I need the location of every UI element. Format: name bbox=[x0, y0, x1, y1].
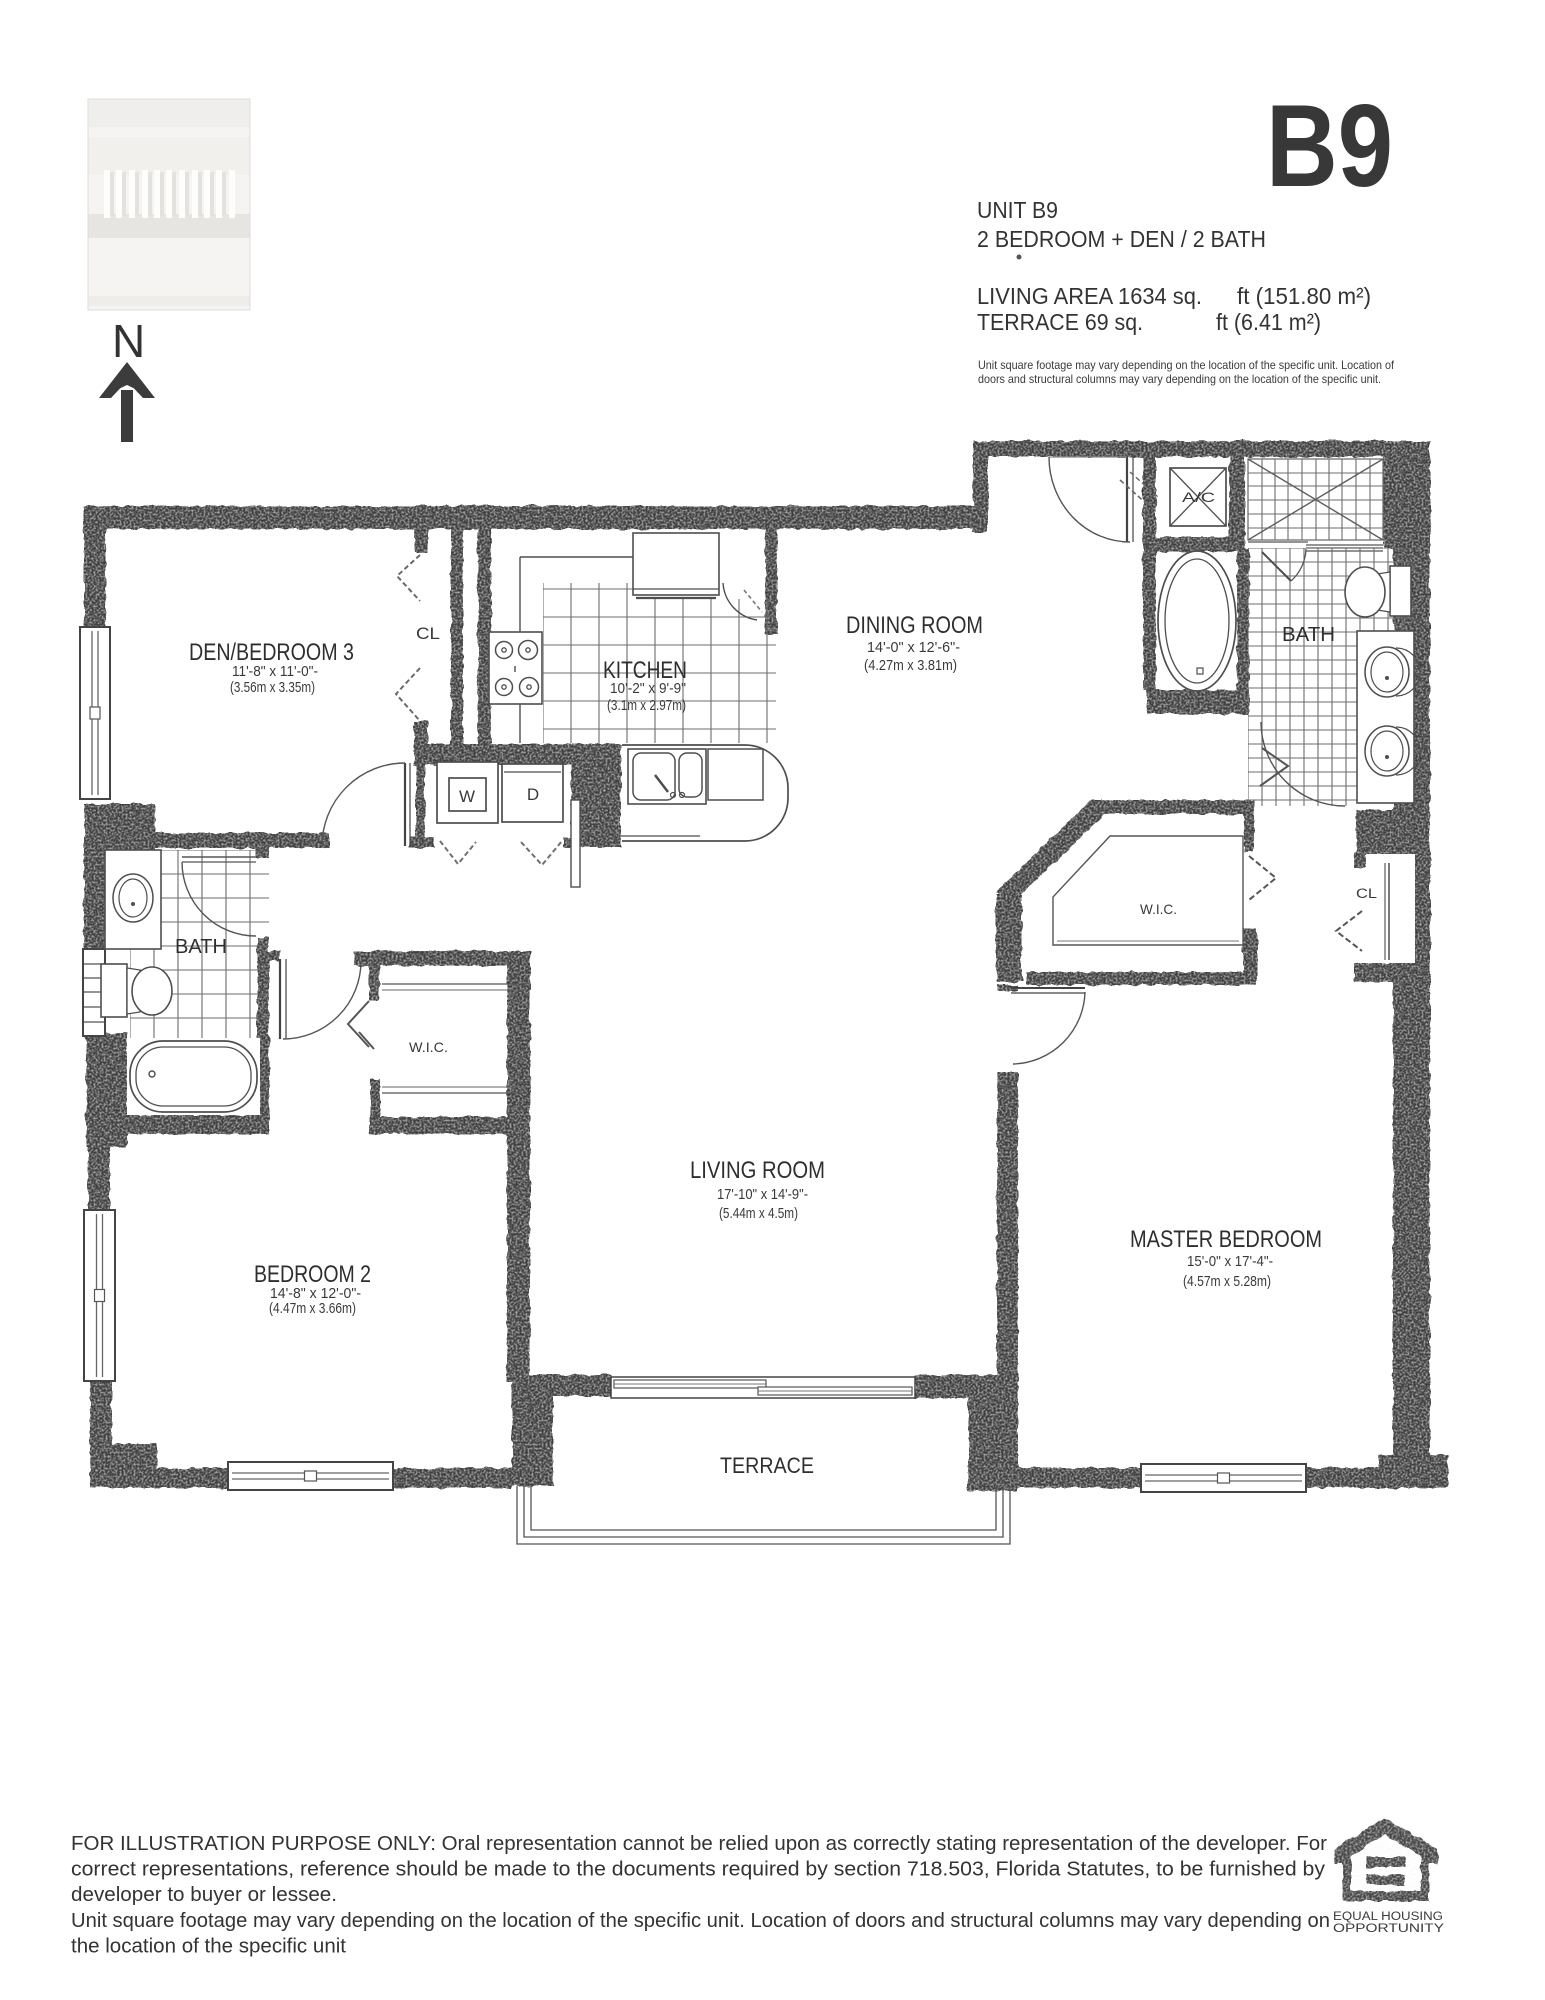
svg-text:UNIT B9: UNIT B9 bbox=[977, 197, 1058, 223]
svg-text:15'-0" x 17'-4"-: 15'-0" x 17'-4"- bbox=[1187, 1253, 1273, 1270]
svg-text:14'-0" x 12'-6"-: 14'-0" x 12'-6"- bbox=[867, 639, 960, 656]
svg-text:(3.56m x 3.35m): (3.56m x 3.35m) bbox=[230, 679, 315, 696]
svg-text:2 BEDROOM + DEN / 2 BATH: 2 BEDROOM + DEN / 2 BATH bbox=[977, 226, 1266, 252]
svg-text:W.I.C.: W.I.C. bbox=[1140, 901, 1177, 917]
svg-text:Unit square footage may vary d: Unit square footage may vary depending o… bbox=[978, 359, 1395, 372]
svg-text:D: D bbox=[527, 785, 539, 804]
svg-text:FOR ILLUSTRATION PURPOSE ONLY:: FOR ILLUSTRATION PURPOSE ONLY: Oral repr… bbox=[71, 1832, 1327, 1855]
svg-text:BEDROOM 2: BEDROOM 2 bbox=[254, 1261, 371, 1288]
svg-text:11'-8" x 11'-0"-: 11'-8" x 11'-0"- bbox=[232, 663, 318, 680]
svg-text:TERRACE 69 sq.: TERRACE 69 sq. bbox=[977, 309, 1143, 335]
svg-text:A/C: A/C bbox=[1182, 489, 1215, 505]
svg-text:LIVING ROOM: LIVING ROOM bbox=[690, 1157, 825, 1184]
svg-text:(4.27m x 3.81m): (4.27m x 3.81m) bbox=[864, 657, 957, 674]
svg-text:ft (6.41 m²): ft (6.41 m²) bbox=[1216, 309, 1321, 335]
svg-text:DEN/BEDROOM 3: DEN/BEDROOM 3 bbox=[189, 639, 354, 666]
svg-text:W.I.C.: W.I.C. bbox=[409, 1039, 448, 1055]
svg-text:(3.1m x 2.97m): (3.1m x 2.97m) bbox=[607, 697, 686, 714]
svg-text:BATH: BATH bbox=[1282, 623, 1335, 646]
svg-text:DINING ROOM: DINING ROOM bbox=[846, 612, 983, 639]
svg-text:EQUAL HOUSING: EQUAL HOUSING bbox=[1333, 1911, 1443, 1923]
svg-text:(4.57m x 5.28m): (4.57m x 5.28m) bbox=[1183, 1273, 1271, 1290]
svg-text:CL: CL bbox=[1356, 886, 1378, 901]
svg-text:BATH: BATH bbox=[175, 935, 227, 958]
svg-text:doors and structural columns m: doors and structural columns may vary de… bbox=[978, 373, 1381, 386]
svg-text:(4.47m x 3.66m): (4.47m x 3.66m) bbox=[269, 1300, 356, 1317]
svg-text:LIVING AREA 1634 sq.: LIVING AREA 1634 sq. bbox=[977, 283, 1202, 309]
svg-text:the location of the specific u: the location of the specific unit bbox=[71, 1934, 346, 1957]
svg-text:CL: CL bbox=[416, 625, 440, 643]
svg-text:N: N bbox=[112, 315, 145, 367]
svg-text:ft (151.80 m²): ft (151.80 m²) bbox=[1237, 283, 1371, 309]
svg-text:MASTER BEDROOM: MASTER BEDROOM bbox=[1130, 1226, 1322, 1253]
svg-text:B9: B9 bbox=[1266, 80, 1393, 211]
svg-text:(5.44m x 4.5m): (5.44m x 4.5m) bbox=[719, 1205, 798, 1222]
svg-text:OPPORTUNITY: OPPORTUNITY bbox=[1333, 1923, 1444, 1935]
svg-text:TERRACE: TERRACE bbox=[720, 1453, 814, 1478]
svg-text:W: W bbox=[459, 787, 475, 806]
svg-text:Unit square footage may vary d: Unit square footage may vary depending o… bbox=[71, 1909, 1330, 1932]
svg-text:17'-10" x 14'-9"-: 17'-10" x 14'-9"- bbox=[717, 1186, 808, 1203]
svg-text:10'-2" x 9'-9": 10'-2" x 9'-9" bbox=[610, 680, 686, 697]
svg-text:developer to buyer or lessee.: developer to buyer or lessee. bbox=[71, 1883, 337, 1906]
svg-text:correct representations, refer: correct representations, reference shoul… bbox=[71, 1858, 1326, 1881]
